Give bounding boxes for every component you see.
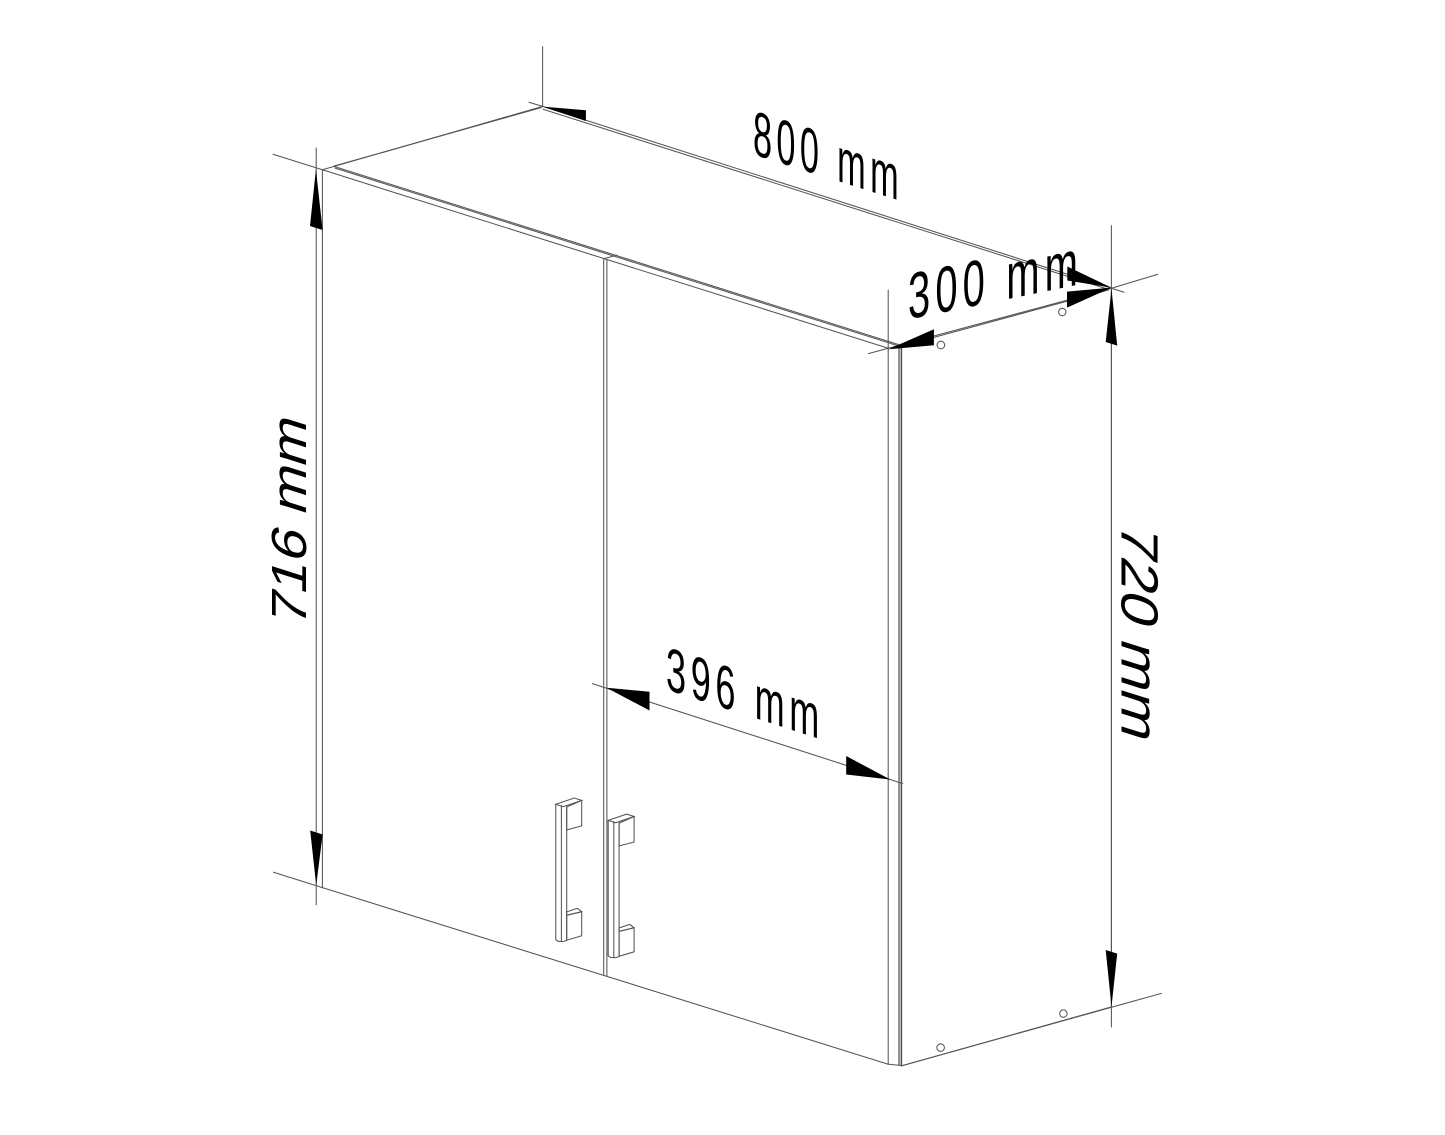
svg-text:716 mm: 716 mm bbox=[262, 407, 317, 632]
svg-text:720 mm: 720 mm bbox=[1110, 518, 1169, 750]
